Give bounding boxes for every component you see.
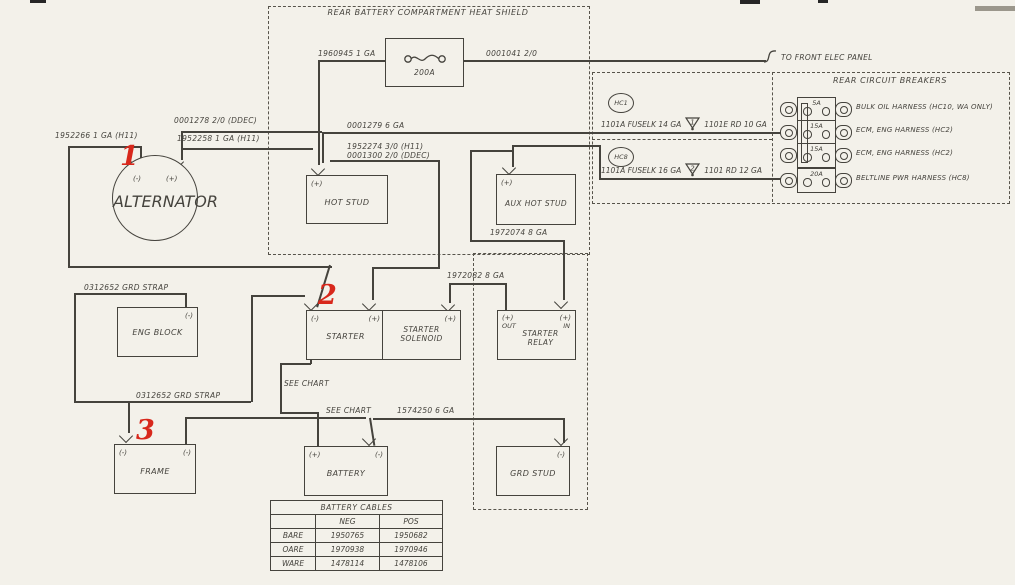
mount-hole-icon — [785, 152, 793, 160]
table-header-blank — [271, 515, 316, 529]
harness-label: ECM, ENG HARNESS (HC2) — [856, 149, 953, 157]
mount-hole-icon — [785, 129, 793, 137]
battery-cables-table: BATTERY CABLES NEG POS BARE 1950765 1950… — [270, 500, 443, 571]
wire-segment — [68, 146, 70, 267]
table-row: BARE 1950765 1950682 — [271, 529, 443, 543]
rd12-label: 1101 RD 12 GA — [704, 166, 762, 175]
eng-block: (-) ENG BLOCK — [117, 307, 198, 357]
wire-junction-vee — [119, 429, 133, 443]
rd10-label: 1101E RD 10 GA — [704, 120, 766, 129]
wire-segment — [599, 178, 787, 180]
svg-text:1: 1 — [691, 119, 695, 127]
starter: (-) (+) STARTER — [306, 310, 385, 360]
starter-label: STARTER — [307, 332, 384, 341]
breaker-tab — [780, 102, 797, 117]
alternator-neg-terminal: (-) — [133, 175, 141, 183]
wire-segment — [449, 283, 506, 285]
mount-hole-icon — [785, 106, 793, 114]
callout-1: 1 — [120, 143, 139, 170]
wire-label-1574250: 1574250 6 GA — [397, 406, 454, 415]
wire-segment — [470, 150, 512, 152]
wire-segment — [251, 295, 305, 297]
frame-neg-terminal-1: (-) — [119, 449, 127, 457]
circuit-breaker-15a-1: 15A ECM, ENG HARNESS (HC2) — [780, 120, 1010, 144]
wire-segment — [318, 60, 320, 165]
battery-pos-terminal: (+) — [309, 451, 320, 459]
fuselink16-label: 1101A FUSELK 16 GA — [601, 166, 681, 175]
alternator-label: ALTERNATOR — [113, 192, 218, 211]
frame: (-) (-) FRAME — [114, 444, 196, 494]
wire-segment — [318, 60, 385, 62]
wire-label-0001278: 0001278 2/0 (DDEC) — [174, 116, 257, 125]
see-chart-label-1: SEE CHART — [284, 379, 329, 388]
scan-artifact — [818, 0, 828, 3]
wire-segment — [563, 240, 565, 300]
circuit-breaker-20a: 20A BELTLINE PWR HARNESS (HC8) — [780, 168, 1010, 192]
wire-segment — [74, 293, 186, 295]
hot-stud: (+) HOT STUD — [306, 175, 388, 224]
mount-hole-icon — [840, 152, 848, 160]
wire-segment — [74, 401, 251, 403]
neg-cell: 1478114 — [316, 557, 380, 571]
eng-block-label: ENG BLOCK — [118, 328, 197, 337]
harness-label: BELTLINE PWR HARNESS (HC8) — [856, 174, 970, 182]
wiring-diagram: REAR BATTERY COMPARTMENT HEAT SHIELD REA… — [0, 0, 1015, 585]
breaker-tab — [835, 102, 852, 117]
wire-segment — [512, 145, 599, 147]
wire-segment — [128, 401, 130, 433]
neg-cell: 1950765 — [316, 529, 380, 543]
battery-neg-terminal: (-) — [375, 451, 383, 459]
wire-segment — [280, 363, 311, 365]
wire-segment — [505, 283, 507, 310]
wire-segment — [322, 132, 324, 163]
fusible-link-triangle-2: 2 — [685, 163, 700, 177]
mount-hole-icon — [840, 106, 848, 114]
wire-segment — [322, 132, 786, 134]
wire-segment — [470, 150, 472, 241]
fuselink14-label: 1101A FUSELK 14 GA — [601, 120, 681, 129]
grd-stud-label: GRD STUD — [497, 469, 569, 478]
mount-hole-icon — [785, 177, 793, 185]
breaker-tab — [780, 125, 797, 140]
fusible-link-triangle-1: 1 — [685, 117, 700, 131]
see-chart-label-2: SEE CHART — [326, 406, 371, 415]
mount-hole-icon — [840, 177, 848, 185]
table-header-row: NEG POS — [271, 515, 443, 529]
circuit-breakers-title: REAR CIRCUIT BREAKERS — [772, 76, 1008, 85]
pos-cell: 1950682 — [380, 529, 443, 543]
mount-hole-icon — [840, 129, 848, 137]
wire-segment — [280, 363, 282, 413]
breaker-tab — [835, 125, 852, 140]
breaker-amps: 20A — [798, 170, 835, 178]
grd-stud: (-) GRD STUD — [496, 446, 570, 496]
scan-artifact — [740, 0, 760, 4]
fuse-icon — [402, 51, 448, 67]
table-header-pos: POS — [380, 515, 443, 529]
breaker-body: 20A — [797, 168, 836, 193]
breaker-terminal — [822, 130, 831, 139]
enclosure-divider — [772, 72, 773, 202]
wire-label-1952258: 1952258 1 GA (H11) — [177, 134, 260, 143]
wire-label-grd-strap-1: 0312652 GRD STRAP — [84, 283, 168, 292]
wire-segment — [438, 160, 440, 268]
model-cell: WARE — [271, 557, 316, 571]
eng-block-neg-terminal: (-) — [185, 312, 193, 320]
relay-label: STARTER RELAY — [512, 329, 569, 347]
wire-segment — [181, 148, 313, 150]
wire-segment — [251, 295, 253, 402]
table-title-row: BATTERY CABLES — [271, 501, 443, 515]
hc1-connector: HC1 — [608, 93, 634, 113]
hot-stud-label: HOT STUD — [307, 198, 387, 207]
pos-cell: 1478106 — [380, 557, 443, 571]
fuselink-row-16ga: 1101A FUSELK 16 GA 2 1101 RD 12 GA — [601, 163, 762, 177]
scan-artifact — [975, 6, 1015, 11]
breaker-terminal — [822, 153, 831, 162]
wire-label-1952266: 1952266 1 GA (H11) — [55, 131, 138, 140]
to-front-elec-panel-label: TO FRONT ELEC PANEL — [781, 53, 873, 62]
svg-text:2: 2 — [691, 165, 696, 173]
wire-label-1972082: 1972082 8 GA — [447, 271, 504, 280]
wire-segment — [330, 160, 440, 162]
breaker-tab — [835, 148, 852, 163]
wire-label-1972074: 1972074 8 GA — [490, 228, 547, 237]
hc8-label: HC8 — [614, 153, 628, 161]
starter-relay: (+) OUT (+) IN STARTER RELAY — [497, 310, 576, 360]
harness-label: BULK OIL HARNESS (HC10, WA ONLY) — [856, 103, 993, 111]
battery-label: BATTERY — [305, 469, 387, 478]
breaker-tab — [780, 173, 797, 188]
wire-segment — [373, 418, 564, 420]
wire-break-hook-icon — [763, 47, 778, 64]
enclosure-divider — [592, 139, 772, 140]
wire-segment — [470, 240, 564, 242]
wire-label-1960945: 1960945 1 GA — [318, 49, 375, 58]
starter-pos-terminal: (+) — [369, 315, 380, 323]
wire-segment — [462, 60, 766, 62]
wire-junction-vee — [304, 297, 318, 311]
wire-segment — [181, 131, 322, 133]
circuit-breaker-15a-2: 15A ECM, ENG HARNESS (HC2) — [780, 143, 1010, 167]
battery: (+) (-) BATTERY — [304, 446, 388, 496]
hc1-label: HC1 — [614, 99, 628, 107]
wire-segment — [185, 417, 187, 445]
table-row: OARE 1970938 1970946 — [271, 543, 443, 557]
neg-cell: 1970938 — [316, 543, 380, 557]
fuse-rating: 200A — [386, 68, 463, 77]
relay-in-pos: (+) — [560, 314, 571, 322]
wire-segment — [372, 267, 374, 300]
table-title: BATTERY CABLES — [271, 501, 443, 515]
wire-junction-vee — [362, 297, 376, 311]
breaker-bus-bar — [801, 103, 808, 163]
breaker-terminal — [822, 107, 831, 116]
table-row: WARE 1478114 1478106 — [271, 557, 443, 571]
aux-hot-stud-label: AUX HOT STUD — [497, 199, 575, 208]
aux-hot-stud-pos-terminal: (+) — [501, 179, 512, 187]
starter-solenoid: (+) STARTER SOLENOID — [382, 310, 461, 360]
wire-segment — [185, 417, 366, 419]
breaker-tab — [835, 173, 852, 188]
fuselink-row-14ga: 1101A FUSELK 14 GA 1 1101E RD 10 GA — [601, 117, 767, 131]
starter-neg-terminal: (-) — [311, 315, 319, 323]
wire-label-0001300: 0001300 2/0 (DDEC) — [347, 151, 430, 160]
table-header-neg: NEG — [316, 515, 380, 529]
scan-artifact — [30, 0, 46, 3]
wire-label-0001279: 0001279 6 GA — [347, 121, 404, 130]
breaker-terminal — [822, 178, 831, 187]
fuse-200a: 200A — [385, 38, 464, 87]
model-cell: BARE — [271, 529, 316, 543]
solenoid-pos-terminal: (+) — [445, 315, 456, 323]
wire-segment — [74, 293, 76, 402]
frame-neg-terminal-2: (-) — [183, 449, 191, 457]
aux-hot-stud: (+) AUX HOT STUD — [496, 174, 576, 225]
callout-3: 3 — [136, 417, 155, 444]
relay-out-pos: (+) — [502, 314, 513, 322]
grd-stud-neg-terminal: (-) — [557, 451, 565, 459]
heat-shield-title: REAR BATTERY COMPARTMENT HEAT SHIELD — [268, 8, 588, 17]
circuit-breaker-5a: 5A BULK OIL HARNESS (HC10, WA ONLY) — [780, 97, 1010, 121]
breaker-terminal — [803, 178, 812, 187]
wire-label-1952274: 1952274 3/0 (H11) — [347, 142, 423, 151]
wire-segment — [68, 266, 332, 268]
alternator-pos-terminal: (+) — [166, 175, 177, 183]
callout-2: 2 — [318, 282, 337, 309]
breaker-tab — [780, 148, 797, 163]
wire-segment — [372, 267, 440, 269]
frame-label: FRAME — [115, 467, 195, 476]
pos-cell: 1970946 — [380, 543, 443, 557]
harness-label: ECM, ENG HARNESS (HC2) — [856, 126, 953, 134]
solenoid-label: STARTER SOLENOID — [391, 325, 452, 343]
hot-stud-pos-terminal: (+) — [311, 180, 322, 188]
model-cell: OARE — [271, 543, 316, 557]
wire-label-0001041: 0001041 2/0 — [486, 49, 537, 58]
wire-segment — [317, 412, 319, 447]
wire-segment — [280, 412, 318, 414]
wire-label-grd-strap-2: 0312652 GRD STRAP — [136, 391, 220, 400]
